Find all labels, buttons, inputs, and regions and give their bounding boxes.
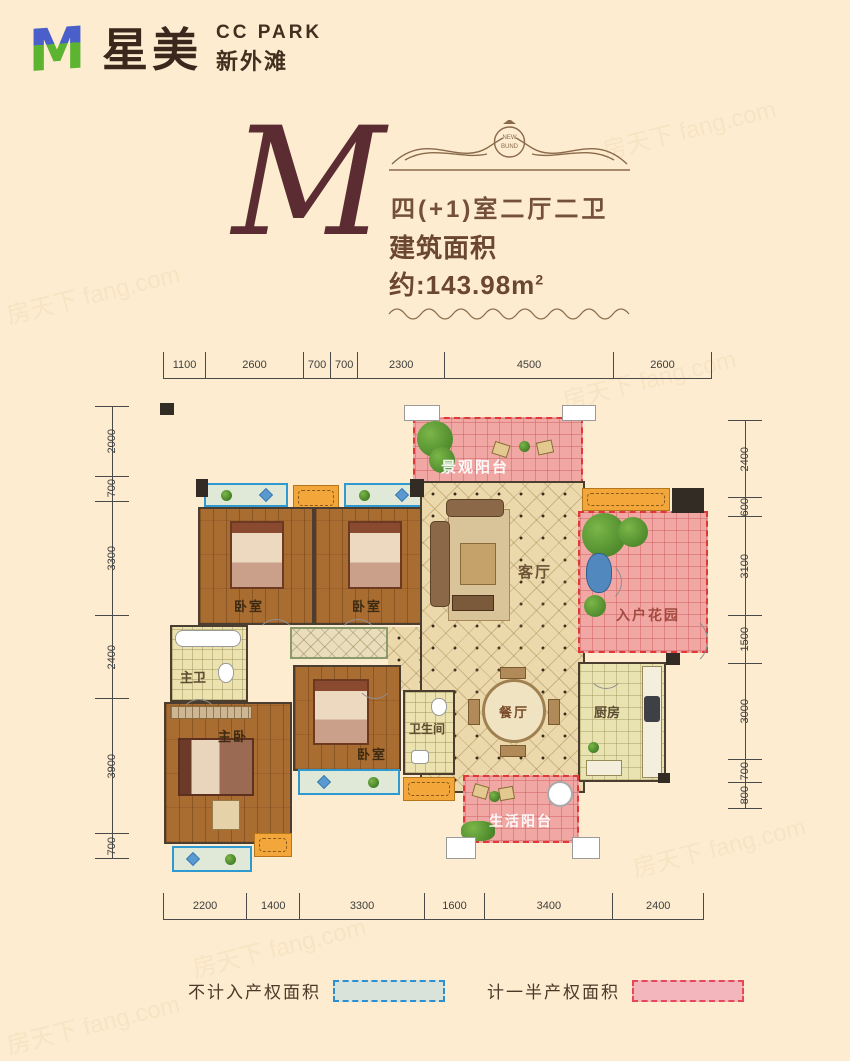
kitchen-counter [642, 666, 662, 778]
door-arc [580, 561, 622, 603]
plant-pot [359, 490, 370, 501]
plant-pot [588, 742, 599, 753]
brand-name-en: CC PARK [216, 22, 322, 44]
chair [500, 745, 526, 757]
washer [547, 781, 573, 807]
door-arc [338, 619, 378, 659]
unit-area-label: 建筑面积约:143.98m [389, 233, 535, 300]
wall [672, 488, 704, 513]
flourish-underline-icon [387, 306, 632, 322]
balcony-table [498, 786, 515, 801]
dim-bottom: 2200 [163, 893, 246, 919]
ac-platform [582, 488, 670, 511]
svg-text:M: M [28, 16, 85, 76]
unit-area-text: 建筑面积约:143.98m2 [389, 228, 632, 302]
ruler-left: 2000 700 3300 2400 3900 700 [95, 406, 129, 859]
decor-diamond-icon [259, 488, 273, 502]
dim-left: 3300 [106, 546, 118, 570]
dim-right: 1500 [739, 627, 751, 651]
flourish-ornament-icon: NEW BUND [387, 120, 632, 178]
unit-letter: M [232, 108, 386, 258]
sofa [430, 521, 450, 607]
wall [196, 479, 208, 497]
dim-left: 2000 [106, 429, 118, 453]
bay-window [204, 483, 288, 507]
decor-diamond-icon [395, 488, 409, 502]
room-label: 卧室 [234, 596, 264, 615]
sofa [446, 499, 504, 517]
toilet [218, 663, 234, 683]
dim-bottom: 3400 [484, 893, 612, 919]
dim-bottom: 1400 [246, 893, 299, 919]
room-label: 生活阳台 [489, 811, 553, 831]
ottoman [212, 800, 240, 830]
wall [658, 773, 670, 783]
balcony-table [471, 783, 489, 800]
dim-top: 2600 [205, 352, 303, 378]
dining-table: 餐厅 [482, 679, 546, 743]
wall [410, 479, 424, 497]
room-view-balcony: 景观阳台 [413, 417, 583, 485]
watermark: 房天下 fang.com [2, 984, 183, 1061]
bathtub [175, 630, 241, 647]
room-bedroom1: 卧室 [198, 507, 314, 625]
ruler-top: 1100 2600 700 700 2300 4500 2600 [163, 352, 712, 379]
pillar [404, 405, 440, 421]
room-bedroom2: 卧室 [314, 507, 422, 625]
dim-right: 600 [739, 498, 751, 516]
unit-layout-text: 四(+1)室二厅二卫 [391, 189, 632, 224]
sink [586, 760, 622, 776]
decor-diamond-icon [186, 852, 200, 866]
room-bathroom: 卫生间 [403, 690, 455, 775]
svg-text:BUND: BUND [501, 144, 519, 150]
brand-name: 星美 [102, 14, 202, 80]
door-arc [180, 699, 218, 737]
floor-plan: 景观阳台 卧室 卧室 客厅 餐厅 [160, 403, 712, 875]
bed [230, 521, 284, 589]
door-arc [356, 661, 394, 699]
header: M 星美 CC PARK 新外滩 [22, 12, 322, 81]
dim-top: 2300 [357, 352, 444, 378]
wall [160, 403, 174, 415]
title-right: NEW BUND 四(+1)室二厅二卫 建筑面积约:143.98m2 [387, 120, 632, 327]
ac-platform [254, 833, 292, 857]
plant-pot [368, 777, 379, 788]
stove [644, 696, 660, 722]
dim-right: 700 [739, 762, 751, 780]
room-label: 客厅 [518, 561, 552, 582]
ruler-bottom: 2200 1400 3300 1600 3400 2400 [163, 893, 704, 920]
pillar [562, 405, 596, 421]
ac-platform [403, 777, 455, 801]
dim-left: 700 [106, 837, 118, 855]
dim-bottom: 3300 [299, 893, 423, 919]
dim-bottom: 2400 [612, 893, 703, 919]
plant-pot [225, 854, 236, 865]
brand-logo-icon: M [22, 16, 92, 81]
coffee-table [460, 543, 496, 585]
room-label: 主卫 [180, 667, 206, 686]
dim-top: 4500 [444, 352, 613, 378]
dim-left: 2400 [106, 645, 118, 669]
dim-right: 3000 [739, 699, 751, 723]
dim-top: 1100 [163, 352, 205, 378]
dim-right: 800 [739, 786, 751, 804]
plant-pot [489, 791, 500, 802]
plant-pot [519, 441, 530, 452]
room-label: 卫生间 [409, 720, 445, 737]
bed [178, 738, 254, 796]
unit-area-sup: 2 [535, 271, 544, 287]
room-label: 卧室 [357, 744, 387, 763]
room-label: 餐厅 [499, 702, 529, 721]
dim-left: 3900 [106, 754, 118, 778]
toilet [431, 698, 447, 716]
legend-swatch-not-counted [333, 980, 445, 1002]
legend-label-half-counted: 计一半产权面积 [487, 978, 620, 1003]
chair [468, 699, 480, 725]
room-label: 主卧 [218, 726, 248, 745]
door-arc [588, 653, 624, 689]
decor-diamond-icon [317, 775, 331, 789]
balcony-table [536, 439, 554, 455]
dim-right: 2400 [739, 447, 751, 471]
dim-top: 700 [303, 352, 330, 378]
chair [500, 667, 526, 679]
brand-subname: 新外滩 [216, 44, 322, 76]
door-arc [256, 619, 296, 659]
bay-window [172, 846, 252, 872]
dim-right: 3100 [739, 554, 751, 578]
plant [618, 517, 648, 547]
wall [666, 653, 680, 665]
room-label: 景观阳台 [441, 456, 509, 477]
bed [348, 521, 402, 589]
room-label: 厨房 [594, 702, 620, 721]
watermark: 房天下 fang.com [2, 254, 183, 331]
legend-label-not-counted: 不计入产权面积 [188, 978, 321, 1003]
pillar [446, 837, 476, 859]
room-service-balcony: 生活阳台 [463, 775, 579, 843]
room-label: 卧室 [352, 596, 382, 615]
dim-top: 2600 [613, 352, 711, 378]
dim-top: 700 [330, 352, 357, 378]
bay-window [298, 769, 400, 795]
entry-door-arc [656, 615, 708, 667]
pillar [572, 837, 600, 859]
svg-text:NEW: NEW [503, 135, 517, 141]
dim-left: 700 [106, 479, 118, 497]
chair [548, 699, 560, 725]
legend-swatch-half-counted [632, 980, 744, 1002]
sink [411, 750, 429, 764]
dim-bottom: 1600 [424, 893, 485, 919]
bench [452, 595, 494, 611]
room-master-bath: 主卫 [170, 625, 248, 702]
plant-pot [221, 490, 232, 501]
legend: 不计入产权面积 计一半产权面积 [188, 978, 744, 1003]
ruler-right: 2400 600 3100 1500 3000 700 800 [728, 420, 762, 809]
